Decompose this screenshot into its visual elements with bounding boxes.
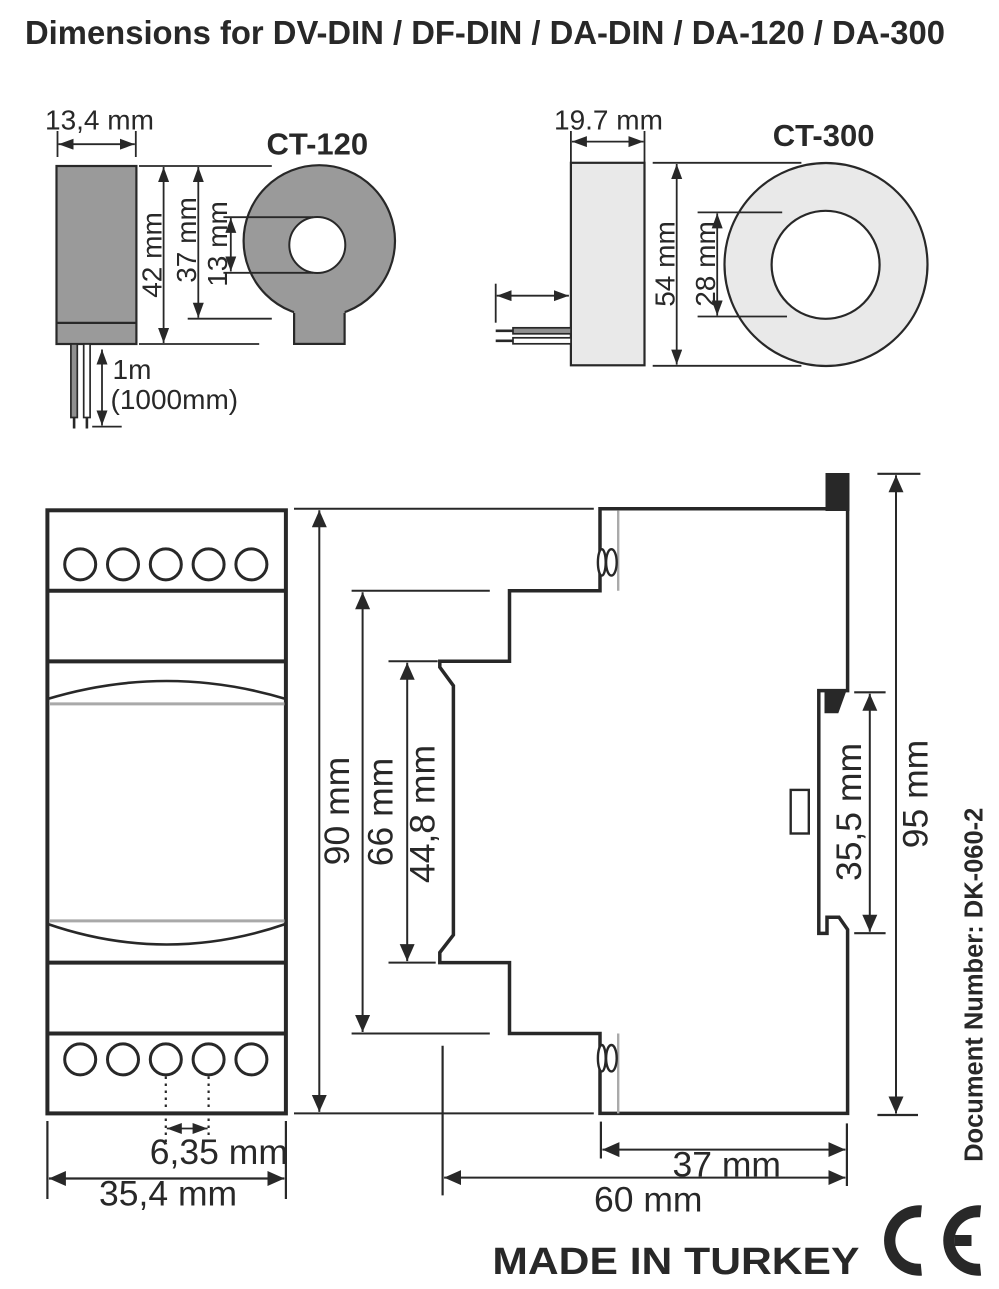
svg-text:Document Number: DK-060-2: Document Number: DK-060-2: [961, 808, 989, 1162]
svg-text:MADE IN TURKEY: MADE IN TURKEY: [492, 1241, 859, 1283]
svg-text:(1000mm): (1000mm): [111, 384, 239, 415]
svg-text:CT-120: CT-120: [267, 127, 369, 162]
svg-text:35,4 mm: 35,4 mm: [99, 1174, 237, 1214]
svg-text:Dimensions for DV-DIN / DF-DIN: Dimensions for DV-DIN / DF-DIN / DA-DIN …: [25, 14, 945, 51]
svg-text:13 mm: 13 mm: [202, 201, 233, 287]
svg-text:42 mm: 42 mm: [137, 212, 168, 298]
svg-text:35,5 mm: 35,5 mm: [829, 743, 869, 881]
svg-text:54 mm: 54 mm: [650, 221, 681, 307]
svg-text:6,35 mm: 6,35 mm: [150, 1132, 288, 1172]
svg-text:90 mm: 90 mm: [317, 757, 357, 866]
svg-text:44,8 mm: 44,8 mm: [403, 745, 443, 883]
svg-text:19.7 mm: 19.7 mm: [554, 104, 663, 135]
svg-text:13,4 mm: 13,4 mm: [45, 104, 154, 135]
svg-text:28 mm: 28 mm: [690, 221, 721, 307]
svg-text:95 mm: 95 mm: [896, 740, 936, 849]
svg-text:37 mm: 37 mm: [171, 197, 202, 283]
svg-text:66 mm: 66 mm: [360, 758, 400, 867]
svg-text:1m: 1m: [113, 354, 152, 385]
svg-text:60 mm: 60 mm: [594, 1180, 703, 1220]
svg-text:CT-300: CT-300: [773, 118, 875, 153]
